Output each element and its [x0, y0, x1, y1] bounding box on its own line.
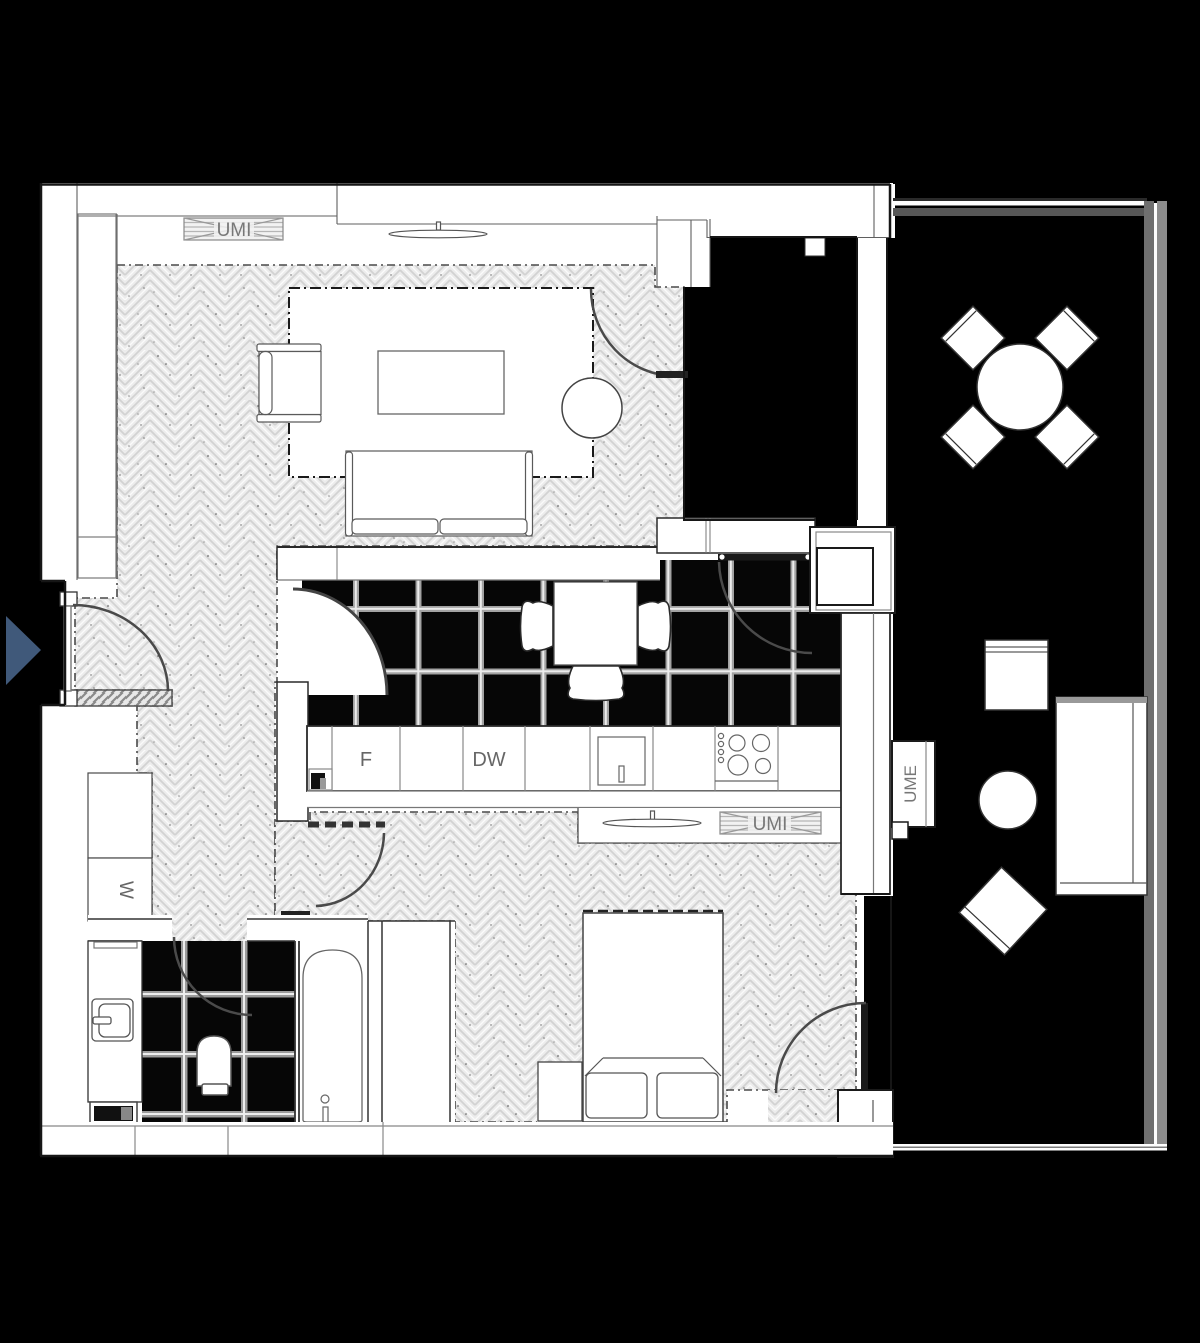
svg-text:F: F [360, 749, 372, 771]
svg-text:UMI: UMI [217, 220, 252, 241]
svg-text:UME: UME [901, 765, 920, 803]
svg-text:DW: DW [472, 749, 505, 771]
svg-text:W: W [115, 881, 136, 899]
svg-text:UMI: UMI [753, 814, 788, 835]
